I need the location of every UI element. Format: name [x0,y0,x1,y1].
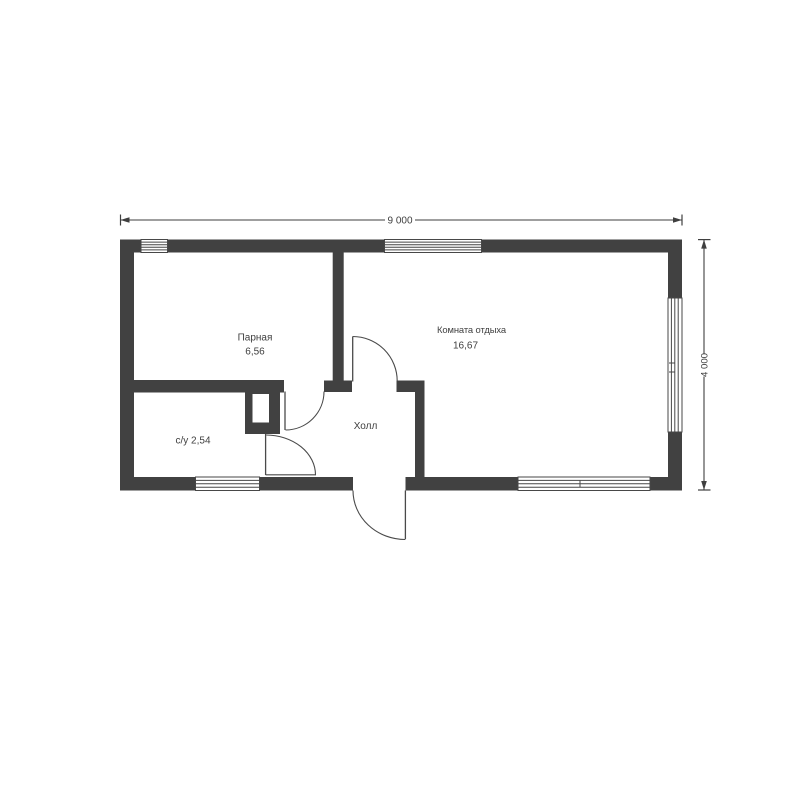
svg-text:Комната отдыха: Комната отдыха [437,324,507,335]
svg-text:6,56: 6,56 [245,347,265,358]
svg-text:с/у 2,54: с/у 2,54 [175,436,210,447]
svg-text:4 000: 4 000 [699,353,710,377]
svg-text:16,67: 16,67 [453,341,478,352]
svg-text:Холл: Холл [354,421,378,432]
svg-text:Парная: Парная [238,333,273,344]
svg-text:9 000: 9 000 [387,216,412,227]
